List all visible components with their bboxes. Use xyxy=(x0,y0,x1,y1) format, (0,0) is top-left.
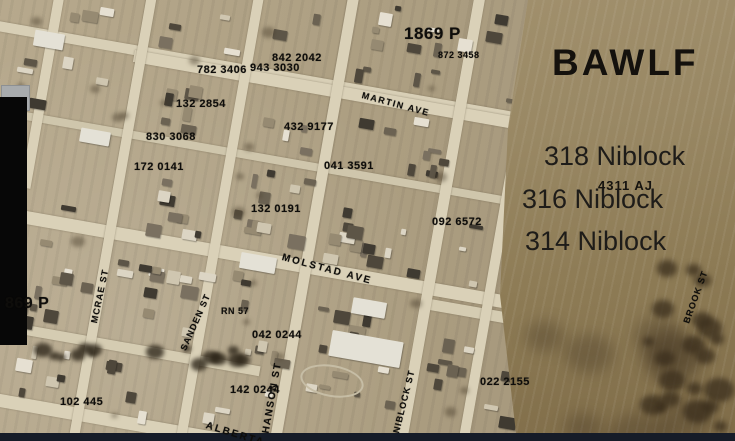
listing-label-316-niblock: 316 Niblock xyxy=(522,184,663,215)
listing-labels-layer: 318 Niblock4311 AJ316 Niblock314 Niblock xyxy=(0,0,735,441)
listing-label-318-niblock: 318 Niblock xyxy=(544,141,685,172)
aerial-photo: MARTIN AVEMOLSTAD AVEALBERTAMCRAE STSAND… xyxy=(0,0,735,441)
listing-label-314-niblock: 314 Niblock xyxy=(525,226,666,257)
